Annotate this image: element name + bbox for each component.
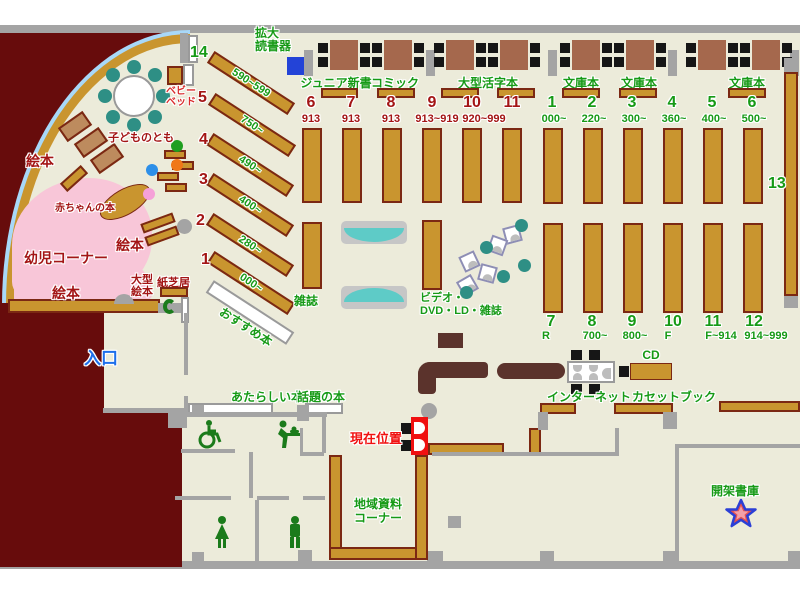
shelf13-cap <box>784 58 798 72</box>
chair <box>560 57 570 67</box>
chair-dot <box>480 241 493 254</box>
cd-table <box>630 363 672 380</box>
kamishibai-shelf <box>160 287 188 297</box>
outside-area-bottom-left <box>0 411 182 567</box>
reading-table <box>384 40 412 70</box>
wall <box>675 444 800 448</box>
chair <box>360 43 370 53</box>
chair-dot <box>98 89 112 103</box>
baby-bed-shelf <box>167 66 183 85</box>
shelf-num: 10 <box>463 94 481 112</box>
bookshelf <box>663 223 683 313</box>
table-partition <box>668 50 677 76</box>
toilet-wall <box>175 496 231 500</box>
chair <box>782 43 792 53</box>
chair <box>530 57 540 67</box>
toilet-wall <box>255 500 259 562</box>
reading-table <box>698 40 726 70</box>
bookshelf <box>502 128 522 203</box>
shelf-num: 1 <box>548 94 557 112</box>
chair <box>476 43 486 53</box>
shelf-range: 300~ <box>622 113 647 125</box>
toilet-wall <box>249 452 253 498</box>
chair-dot <box>460 286 473 299</box>
bench <box>341 286 407 309</box>
library-floor-map: { "labels": { "entrance": "入口", "current… <box>0 0 800 600</box>
chair <box>401 440 411 451</box>
bookshelf <box>422 128 442 203</box>
wall <box>300 452 324 456</box>
chair <box>619 366 629 377</box>
chair-dot <box>497 270 510 283</box>
local-resources-shelf <box>415 455 428 560</box>
bookshelf <box>462 128 482 203</box>
shelf-num: 7 <box>347 94 356 112</box>
toilet-wall <box>257 496 289 500</box>
shelf13-cap <box>784 296 798 308</box>
wall-stub <box>663 551 679 561</box>
shelf-range: F <box>665 330 672 342</box>
service-counter <box>497 363 565 379</box>
bookshelf <box>703 128 723 204</box>
reading-table <box>752 40 780 70</box>
bookshelf <box>663 128 683 204</box>
chair-dot <box>148 110 162 124</box>
wall-stub <box>788 551 800 561</box>
chair <box>728 43 738 53</box>
shelf-range: R <box>542 330 550 342</box>
chair <box>614 57 624 67</box>
wall-stub <box>192 552 204 561</box>
shelf-range: 800~ <box>623 330 648 342</box>
local-resources-label: 地域資料コーナー <box>354 497 402 525</box>
yoji-corner-label: 幼児コーナー <box>24 248 108 268</box>
wall-stub <box>663 412 677 429</box>
chair <box>614 43 624 53</box>
wall-stub <box>298 550 312 561</box>
wall-stub <box>540 551 554 561</box>
shelf-range: 913 <box>382 113 400 125</box>
reading-table <box>500 40 528 70</box>
shelf-range: 913 <box>342 113 360 125</box>
shelf-num: 6 <box>748 94 757 112</box>
bench <box>341 221 407 244</box>
bookshelf <box>529 428 541 455</box>
diagonal-shelf-num: 3 <box>199 171 208 189</box>
woman-icon <box>211 515 233 549</box>
wall <box>300 428 303 455</box>
table-partition <box>548 50 557 76</box>
step-shelf <box>165 183 187 192</box>
shelf-range: 920~999 <box>462 113 505 125</box>
chair <box>360 57 370 67</box>
shelf-num: 5 <box>708 94 717 112</box>
internet-table <box>567 361 615 383</box>
bookshelf <box>743 128 763 204</box>
ehon-label: 絵本 <box>116 235 144 255</box>
reading-table <box>330 40 358 70</box>
bookshelf <box>623 128 643 204</box>
chair <box>686 43 696 53</box>
bookshelf <box>703 223 723 313</box>
baby-bed <box>183 64 194 86</box>
corridor-corner-block <box>168 408 187 428</box>
chair <box>589 350 600 360</box>
bookshelf <box>583 223 603 313</box>
bookshelf <box>342 128 362 203</box>
table-partition <box>304 50 313 76</box>
comic-shelf <box>377 88 415 98</box>
current-location-marker <box>411 417 428 455</box>
round-table <box>113 75 155 117</box>
chair-dot <box>106 68 120 82</box>
diagonal-shelf-num: 14 <box>190 44 208 62</box>
chair <box>728 57 738 67</box>
chair <box>530 43 540 53</box>
toilet-wall <box>322 413 326 453</box>
shelf-range: 500~ <box>742 113 767 125</box>
baby-bed-label: ベビーベッド <box>166 86 196 108</box>
chair-dot <box>148 68 162 82</box>
ehon-label: 絵本 <box>52 283 80 303</box>
shelf-num: 8 <box>588 313 597 331</box>
shelf-range: 913 <box>302 113 320 125</box>
chair <box>318 57 328 67</box>
reading-table <box>446 40 474 70</box>
zasshi-label: 雑誌 <box>294 292 318 309</box>
wall <box>615 428 619 456</box>
cd-label: CD <box>642 348 659 362</box>
chair <box>318 43 328 53</box>
chair <box>401 423 411 434</box>
kodomo-no-tomo-label: 子どものとも <box>108 129 174 145</box>
play-dot-blue <box>146 164 158 176</box>
shelf-range: 400~ <box>702 113 727 125</box>
chair <box>372 57 382 67</box>
akachan-books-label: 赤ちゃんの本 <box>55 199 115 214</box>
chair-dot <box>106 110 120 124</box>
wall-stub <box>538 412 548 430</box>
shelf-range: F~914 <box>705 330 737 342</box>
chair <box>602 43 612 53</box>
magnifier-device <box>287 57 304 75</box>
toilet-wall-stub <box>192 405 204 417</box>
wall-stub <box>427 551 443 561</box>
shelf-num: 9 <box>428 94 437 112</box>
bookshelf <box>743 223 763 313</box>
toilet-wall <box>303 496 325 500</box>
reading-table <box>572 40 600 70</box>
door-arc-icon <box>163 299 176 314</box>
shelf-num: 9 <box>628 313 637 331</box>
wall-stub <box>448 516 461 528</box>
diagonal-shelf-num: 5 <box>198 89 207 107</box>
bookshelf <box>719 401 800 412</box>
chair <box>476 57 486 67</box>
chair-dot <box>515 219 528 232</box>
top-wall <box>0 25 800 33</box>
chair <box>434 43 444 53</box>
pillar <box>177 219 192 234</box>
chair <box>740 57 750 67</box>
chair <box>488 43 498 53</box>
reading-table <box>626 40 654 70</box>
chair <box>372 43 382 53</box>
shelf-num: 8 <box>387 94 396 112</box>
shelf-range: 914~999 <box>744 330 787 342</box>
shelf-num: 11 <box>705 313 722 331</box>
service-counter <box>418 362 436 394</box>
chair <box>414 43 424 53</box>
entrance-label: 入口 <box>84 344 118 369</box>
ogata-ehon-label: 大型絵本 <box>131 274 153 298</box>
shelf-num: 6 <box>307 94 316 112</box>
bookshelf-13 <box>784 72 798 296</box>
local-resources-shelf <box>329 547 428 560</box>
corridor-wall <box>184 313 188 375</box>
wall-stub <box>180 33 188 63</box>
shelf-num: 2 <box>588 94 597 112</box>
bookshelf <box>543 223 563 313</box>
bookshelf <box>382 128 402 203</box>
bookshelf <box>543 128 563 204</box>
chair <box>602 57 612 67</box>
bookshelf <box>302 128 322 203</box>
magazine-shelf <box>302 222 322 289</box>
shelf-range: 360~ <box>662 113 687 125</box>
bookshelf <box>422 220 442 290</box>
chair-dot <box>518 259 531 272</box>
diagonal-shelf-num: 2 <box>196 212 205 230</box>
chair <box>656 43 666 53</box>
magnifier-label: 拡大読書器 <box>255 27 291 53</box>
chair <box>740 43 750 53</box>
play-dot-pink <box>143 188 155 200</box>
shelf-range: 220~ <box>582 113 607 125</box>
bookshelf <box>623 223 643 313</box>
chair <box>656 57 666 67</box>
shelf-num: 7 <box>547 313 556 331</box>
shelf-range: 700~ <box>583 330 608 342</box>
counter-dark-box <box>438 333 463 348</box>
man-icon <box>285 515 305 549</box>
corridor-wall <box>103 408 170 413</box>
bunko-shelf <box>619 88 657 98</box>
wall <box>675 444 679 566</box>
chair <box>488 57 498 67</box>
shelf-num: 12 <box>745 313 763 331</box>
toilet-wall-stub <box>297 405 309 421</box>
shelf-range: 913~919 <box>415 113 458 125</box>
chair-dot <box>127 60 141 74</box>
step-shelf <box>157 172 179 181</box>
local-resources-shelf <box>329 455 342 560</box>
chair <box>686 57 696 67</box>
children-room-bottom-wall <box>8 299 160 313</box>
shelf-num: 4 <box>668 94 677 112</box>
chair <box>571 350 582 360</box>
shelf-range: 000~ <box>542 113 567 125</box>
chair <box>560 43 570 53</box>
shelf-num: 3 <box>628 94 637 112</box>
wheelchair-icon <box>194 418 226 450</box>
star-marker <box>725 498 757 529</box>
ehon-label: 絵本 <box>26 151 54 171</box>
current-location-label: 現在位置 <box>350 428 402 447</box>
chair <box>434 57 444 67</box>
shelf-num: 10 <box>664 313 682 331</box>
diagonal-shelf-num: 4 <box>199 131 208 149</box>
wall <box>432 452 617 456</box>
play-dot-orange <box>171 159 183 171</box>
kaika-shoko-label: 開架書庫 <box>711 482 759 499</box>
shelf-num: 11 <box>504 94 521 112</box>
shelf13-label: 13 <box>768 175 786 193</box>
diagonal-shelf-num: 1 <box>201 251 210 269</box>
bookshelf <box>583 128 603 204</box>
chair <box>414 57 424 67</box>
